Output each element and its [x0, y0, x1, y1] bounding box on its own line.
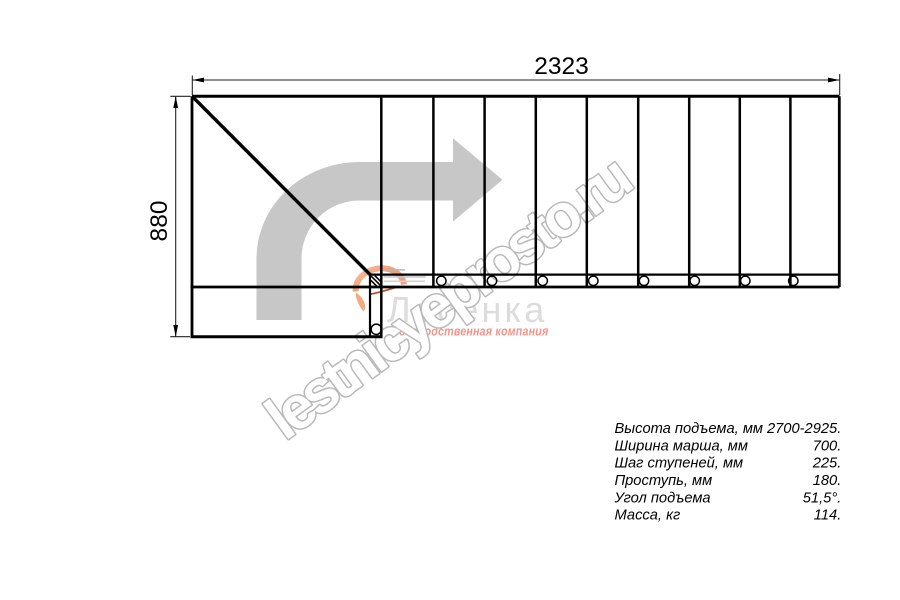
svg-text:Угол подъема: Угол подъема — [614, 490, 711, 506]
svg-text:700.: 700. — [813, 438, 842, 454]
svg-text:Шаг ступеней, мм: Шаг ступеней, мм — [615, 456, 744, 472]
svg-text:Ширина марша, мм: Ширина марша, мм — [615, 438, 748, 454]
svg-text:225.: 225. — [812, 456, 842, 472]
svg-text:2700-2925.: 2700-2925. — [766, 421, 841, 437]
svg-text:51,5°.: 51,5°. — [803, 490, 842, 506]
svg-text:2323: 2323 — [534, 53, 589, 80]
svg-text:Высота подъема, мм: Высота подъема, мм — [615, 421, 763, 437]
svg-text:Проступь, мм: Проступь, мм — [615, 473, 713, 489]
svg-text:880: 880 — [146, 201, 173, 242]
svg-text:180.: 180. — [813, 473, 842, 489]
svg-text:114.: 114. — [814, 508, 842, 524]
svg-text:Масса, кг: Масса, кг — [615, 508, 681, 524]
